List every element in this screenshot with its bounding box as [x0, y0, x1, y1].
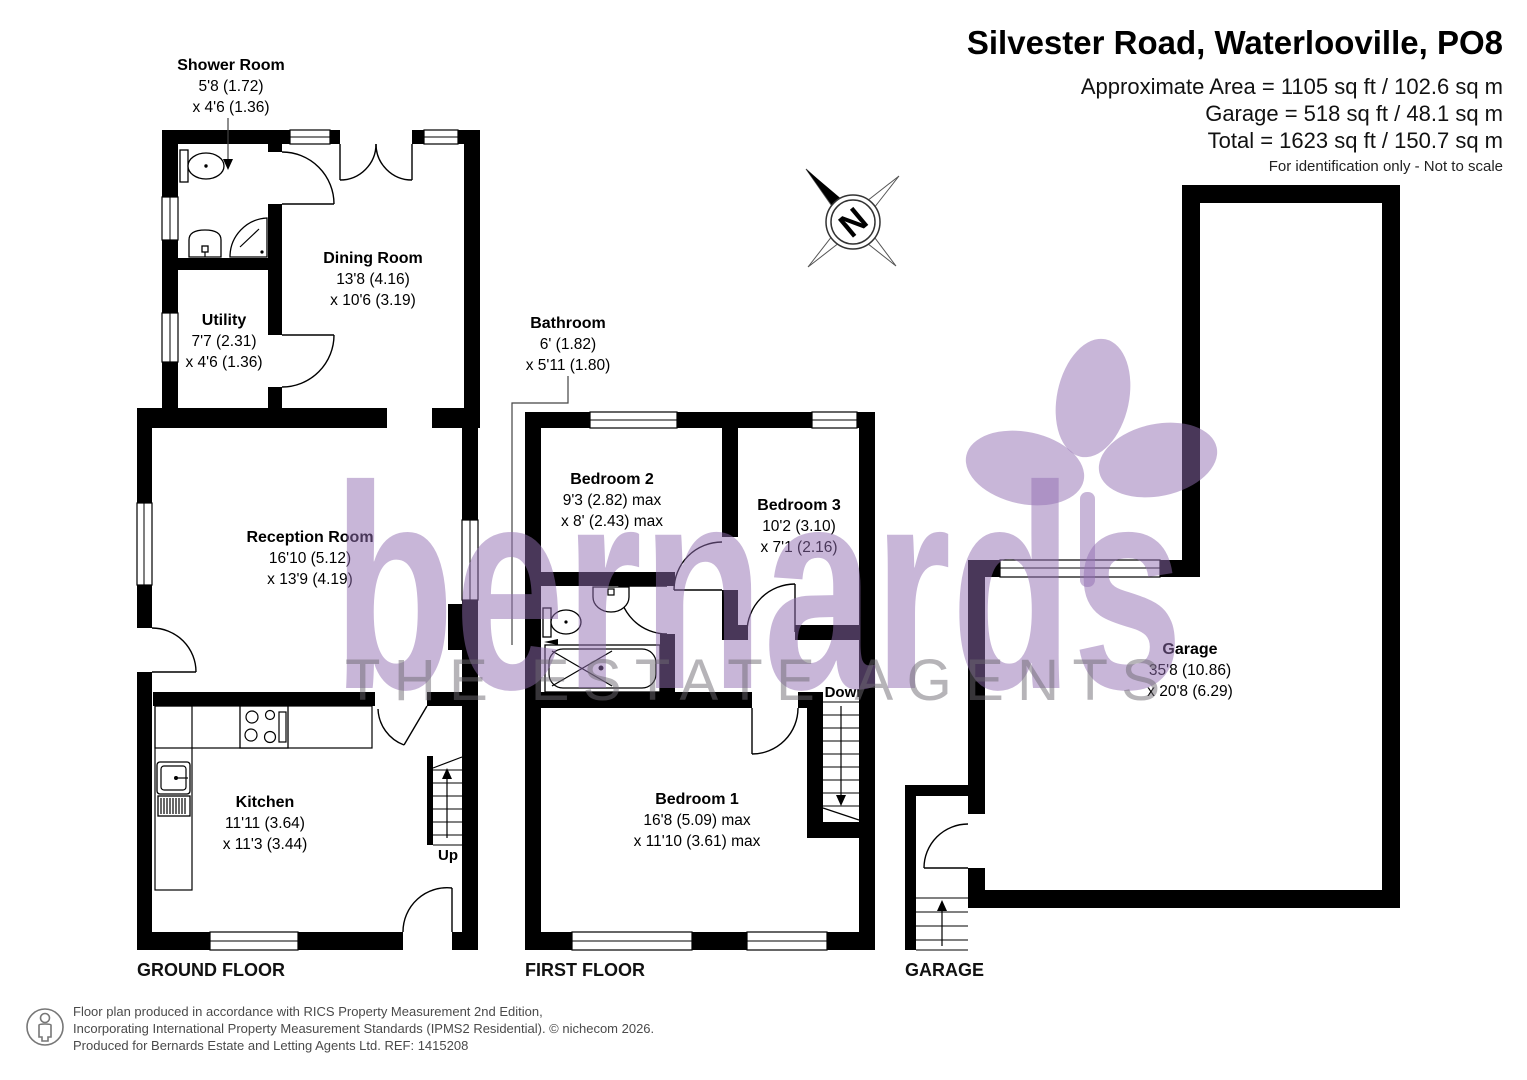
utility-dim1: 7'7 (2.31) [192, 333, 257, 350]
bathroom-dim2: x 5'11 (1.80) [526, 357, 611, 374]
bedroom1-dim2: x 11'10 (3.61) max [634, 833, 761, 850]
area-garage-line: Garage = 518 sq ft / 48.1 sq m [1205, 101, 1503, 126]
kitchen-dim1: 11'11 (3.64) [225, 815, 305, 832]
garage-floor-title: GARAGE [905, 960, 984, 980]
page-title: Silvester Road, Waterlooville, PO8 [967, 24, 1503, 61]
corner-shower-icon [230, 218, 267, 257]
person-icon [27, 1009, 63, 1045]
appliance-icon [158, 796, 190, 816]
dining-room-label: Dining Room [323, 250, 423, 267]
footer-line2: Incorporating International Property Mea… [73, 1021, 654, 1036]
shower-room-dim1: 5'8 (1.72) [199, 78, 264, 95]
dining-room-dim2: x 10'6 (3.19) [330, 292, 416, 309]
compass-rose-icon: N [806, 169, 899, 267]
utility-dim2: x 4'6 (1.36) [185, 354, 262, 371]
kitchen-dim2: x 11'3 (3.44) [223, 836, 308, 853]
shower-room-label: Shower Room [177, 57, 285, 74]
bedroom1-label: Bedroom 1 [655, 791, 739, 808]
bedroom1-dim1: 16'8 (5.09) max [643, 812, 750, 829]
dining-room-dim1: 13'8 (4.16) [336, 271, 410, 288]
header: Silvester Road, Waterlooville, PO8 Appro… [967, 24, 1503, 175]
hob-icon [240, 706, 288, 748]
footer-line1: Floor plan produced in accordance with R… [73, 1004, 543, 1019]
kitchen-label: Kitchen [236, 794, 295, 811]
stairs-up [433, 757, 462, 845]
bathroom-label: Bathroom [530, 315, 606, 332]
ground-floor-title: GROUND FLOOR [137, 960, 285, 980]
area-sum-line: Total = 1623 sq ft / 150.7 sq m [1208, 128, 1503, 153]
disclaimer-text: For identification only - Not to scale [1269, 158, 1503, 175]
first-floor-title: FIRST FLOOR [525, 960, 645, 980]
shower-room-fixtures [180, 150, 267, 257]
stairs-up-label: Up [438, 847, 458, 864]
basin-icon [189, 230, 221, 257]
shower-room-dim2: x 4'6 (1.36) [192, 99, 269, 116]
floorplan-page: Shower Room 5'8 (1.72) x 4'6 (1.36) Dini… [0, 0, 1527, 1080]
watermark-tagline: THE ESTATE AGENTS [345, 648, 1160, 713]
sink-icon [157, 762, 190, 794]
toilet-icon [180, 150, 224, 182]
bathroom-dim1: 6' (1.82) [540, 336, 596, 353]
utility-label: Utility [202, 312, 247, 329]
footer-line3: Produced for Bernards Estate and Letting… [73, 1038, 468, 1053]
area-total-line: Approximate Area = 1105 sq ft / 102.6 sq… [1081, 74, 1503, 99]
garage-door [924, 824, 968, 868]
footer: Floor plan produced in accordance with R… [27, 1004, 654, 1053]
garage-steps [916, 898, 968, 950]
floorplan-canvas: Shower Room 5'8 (1.72) x 4'6 (1.36) Dini… [0, 0, 1527, 1080]
